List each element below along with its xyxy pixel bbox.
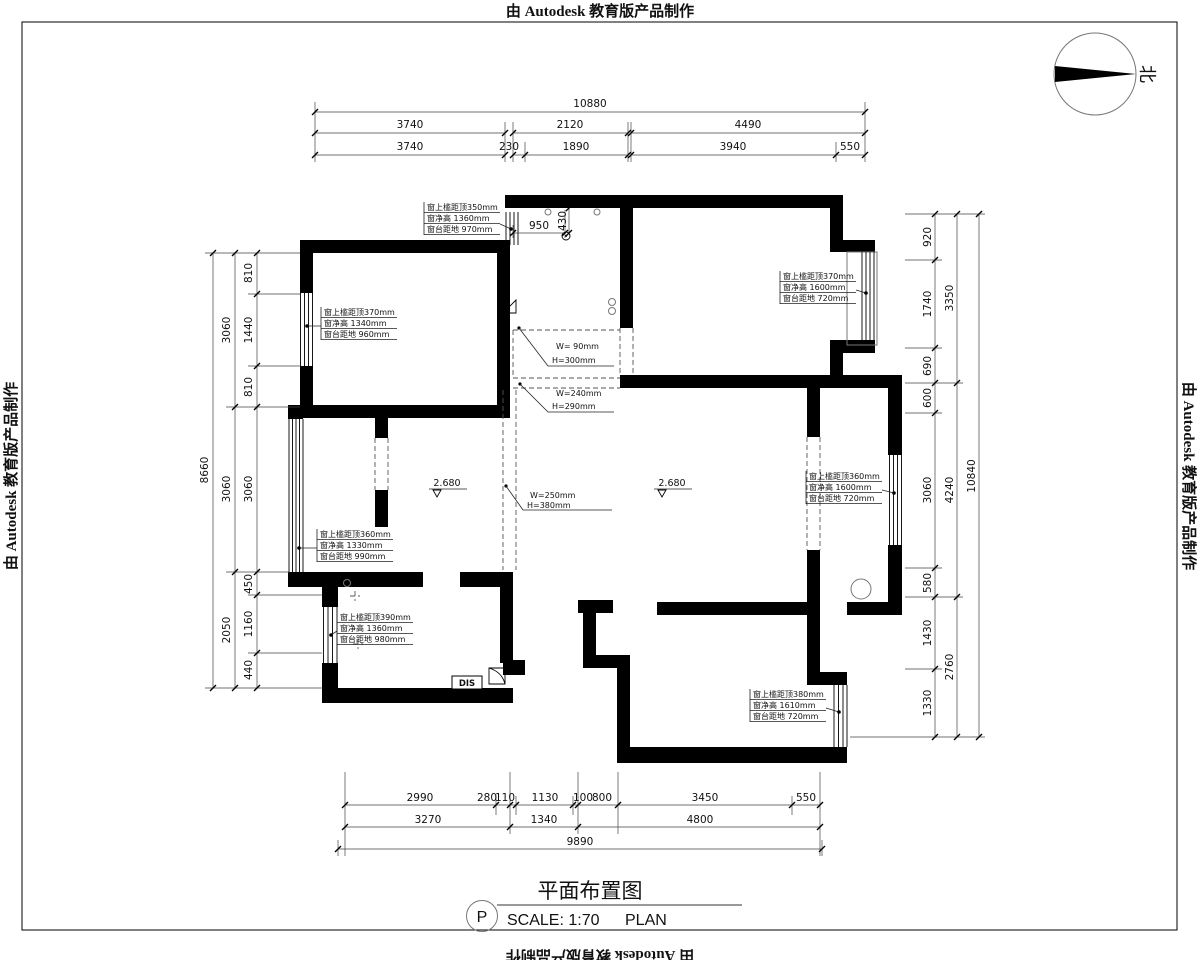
dim-label: 550 bbox=[840, 141, 860, 153]
dim-label: 2050 bbox=[221, 617, 233, 644]
annotation-line: 窗净高 1340mm bbox=[324, 318, 387, 328]
window-annotation-5: 窗上槛距顶360mm 窗净高 1330mm 窗台距地 990mm bbox=[297, 529, 393, 562]
dim-label: 10840 bbox=[966, 459, 978, 492]
annotation-line: 窗净高 1360mm bbox=[427, 213, 490, 223]
dis-box: DIS bbox=[452, 676, 482, 689]
annotation-line: 窗台距地 720mm bbox=[783, 293, 849, 303]
annotation-line: W=250mm bbox=[530, 491, 576, 500]
stamp-right: 由 Autodesk 教育版产品制作 bbox=[1180, 382, 1198, 570]
dim-label: 810 bbox=[243, 377, 255, 397]
stove-burner-icon bbox=[609, 308, 616, 315]
dim-left: 8660 3060 3060 2050 810 1440 810 3060 45… bbox=[199, 250, 322, 691]
dim-label: 1160 bbox=[243, 611, 255, 638]
dim-label: 1440 bbox=[243, 317, 255, 344]
drawing-type: PLAN bbox=[625, 912, 667, 929]
opening-annotation-c: W=250mm H=380mm bbox=[504, 484, 612, 510]
annotation-line: H=380mm bbox=[527, 501, 571, 510]
dim-label: 3350 bbox=[944, 285, 956, 312]
stamp-texts: 由 Autodesk 教育版产品制作 由 Autodesk 教育版产品制作 由 … bbox=[2, 2, 1198, 960]
dim-label: 690 bbox=[922, 356, 934, 376]
window-annotation-4: 窗上槛距顶360mm 窗净高 1600mm 窗台距地 720mm bbox=[806, 471, 896, 504]
ceiling-fixture-icon bbox=[594, 209, 600, 215]
dim-label: 2120 bbox=[557, 119, 584, 131]
dim-label: 3060 bbox=[922, 477, 934, 504]
dim-top: 10880 3740 2120 4490 3740 230 1890 3940 … bbox=[312, 98, 868, 162]
dim-label: 4240 bbox=[944, 477, 956, 504]
annotation-line: 窗上槛距顶360mm bbox=[320, 529, 391, 539]
dim-label: 1130 bbox=[532, 792, 559, 804]
dim-label: 1340 bbox=[531, 814, 558, 826]
dim-bottom: 2990 280 110 1130 100 800 3450 550 3270 … bbox=[335, 772, 825, 856]
north-arrow: 北 bbox=[1054, 33, 1157, 115]
annotation-line: 窗上槛距顶360mm bbox=[809, 471, 880, 481]
dim-label: 430 bbox=[557, 211, 569, 231]
dim-label: 110 bbox=[495, 792, 515, 804]
annotation-line: 窗净高 1330mm bbox=[320, 540, 383, 550]
dim-label: 2990 bbox=[407, 792, 434, 804]
annotation-line: 窗台距地 720mm bbox=[753, 711, 819, 721]
stamp-bottom: 由 Autodesk 教育版产品制作 bbox=[506, 947, 694, 960]
window-annotation-1: 窗上槛距顶350mm 窗净高 1360mm 窗台距地 970mm bbox=[424, 202, 513, 235]
dim-label: 920 bbox=[922, 227, 934, 247]
floor-plan-sheet: 由 Autodesk 教育版产品制作 由 Autodesk 教育版产品制作 由 … bbox=[0, 0, 1200, 960]
annotation-line: 窗上槛距顶380mm bbox=[753, 689, 824, 699]
annotation-line: 窗上槛距顶370mm bbox=[324, 307, 395, 317]
light-symbol-icon bbox=[350, 591, 360, 601]
title-block: P 平面布置图 SCALE: 1:70 PLAN bbox=[467, 880, 743, 932]
dis-label: DIS bbox=[459, 679, 475, 689]
window-annotation-3: 窗上槛距顶370mm 窗净高 1600mm 窗台距地 720mm bbox=[780, 271, 868, 304]
floor-drain-icon bbox=[851, 579, 871, 599]
annotation-line: 窗净高 1600mm bbox=[809, 482, 872, 492]
dim-label: 1330 bbox=[922, 690, 934, 717]
ceiling-fixture-icon bbox=[545, 209, 551, 215]
window-annotation-6: 窗上槛距顶390mm 窗净高 1360mm 窗台距地 980mm bbox=[329, 612, 413, 645]
annotation-line: 窗台距地 720mm bbox=[809, 493, 875, 503]
annotation-line: H=300mm bbox=[552, 356, 596, 365]
dim-label: 1430 bbox=[922, 620, 934, 647]
dim-label: 580 bbox=[922, 573, 934, 593]
dim-label: 450 bbox=[243, 574, 255, 594]
dim-label: 3060 bbox=[243, 476, 255, 503]
annotation-line: 窗台距地 960mm bbox=[324, 329, 390, 339]
annotation-line: W= 90mm bbox=[556, 342, 599, 351]
north-needle-icon bbox=[1055, 66, 1136, 82]
opening-annotation-b: W=240mm H=290mm bbox=[518, 382, 614, 412]
level-marker-1: 2.680 bbox=[429, 478, 467, 497]
dim-label: 3740 bbox=[397, 141, 424, 153]
dim-label: 3940 bbox=[720, 141, 747, 153]
dim-label: 1890 bbox=[563, 141, 590, 153]
dim-label: 600 bbox=[922, 388, 934, 408]
annotation-line: 窗台距地 970mm bbox=[427, 224, 493, 234]
north-label: 北 bbox=[1137, 65, 1157, 83]
drawing-scale: SCALE: 1:70 bbox=[507, 912, 600, 929]
dim-label: 3270 bbox=[415, 814, 442, 826]
dim-label: 550 bbox=[796, 792, 816, 804]
annotation-line: W=240mm bbox=[556, 389, 602, 398]
annotation-line: 窗台距地 990mm bbox=[320, 551, 386, 561]
annotation-line: 窗上槛距顶350mm bbox=[427, 202, 498, 212]
dim-label: 100 bbox=[573, 792, 593, 804]
dim-label: 440 bbox=[243, 660, 255, 680]
dim-label: 4800 bbox=[687, 814, 714, 826]
dim-label: 4490 bbox=[735, 119, 762, 131]
dim-label: 810 bbox=[243, 263, 255, 283]
annotation-line: 窗上槛距顶370mm bbox=[783, 271, 854, 281]
dim-label: 10880 bbox=[573, 98, 606, 110]
annotation-line: 窗净高 1610mm bbox=[753, 700, 816, 710]
dim-kitchen-window: 950 430 bbox=[510, 205, 572, 238]
annotation-line: 窗净高 1360mm bbox=[340, 623, 403, 633]
dim-label: 3740 bbox=[397, 119, 424, 131]
window-annotation-7: 窗上槛距顶380mm 窗净高 1610mm 窗台距地 720mm bbox=[750, 689, 841, 722]
dashed-openings bbox=[375, 328, 820, 570]
dim-label: 1740 bbox=[922, 291, 934, 318]
stove-burner-icon bbox=[609, 299, 616, 306]
stamp-left: 由 Autodesk 教育版产品制作 bbox=[2, 382, 20, 570]
dim-label: 230 bbox=[499, 141, 519, 153]
dim-label: 2760 bbox=[944, 654, 956, 681]
dim-label: 3060 bbox=[221, 317, 233, 344]
dim-label: 9890 bbox=[567, 836, 594, 848]
annotation-line: 窗台距地 980mm bbox=[340, 634, 406, 644]
title-tag: P bbox=[477, 909, 488, 926]
dim-label: 800 bbox=[592, 792, 612, 804]
dim-label: 950 bbox=[529, 220, 549, 232]
level-value: 2.680 bbox=[658, 478, 685, 489]
dim-label: 3060 bbox=[221, 476, 233, 503]
dim-label: 3450 bbox=[692, 792, 719, 804]
door-corner-icon bbox=[489, 668, 505, 684]
annotation-line: 窗上槛距顶390mm bbox=[340, 612, 411, 622]
drawing-title: 平面布置图 bbox=[538, 880, 643, 903]
level-value: 2.680 bbox=[433, 478, 460, 489]
stamp-top: 由 Autodesk 教育版产品制作 bbox=[506, 2, 694, 20]
level-marker-2: 2.680 bbox=[654, 478, 692, 497]
annotation-line: H=290mm bbox=[552, 402, 596, 411]
window-annotation-2: 窗上槛距顶370mm 窗净高 1340mm 窗台距地 960mm bbox=[305, 307, 397, 340]
dim-label: 8660 bbox=[199, 457, 211, 484]
opening-annotation-a: W= 90mm H=300mm bbox=[517, 326, 614, 366]
annotation-line: 窗净高 1600mm bbox=[783, 282, 846, 292]
